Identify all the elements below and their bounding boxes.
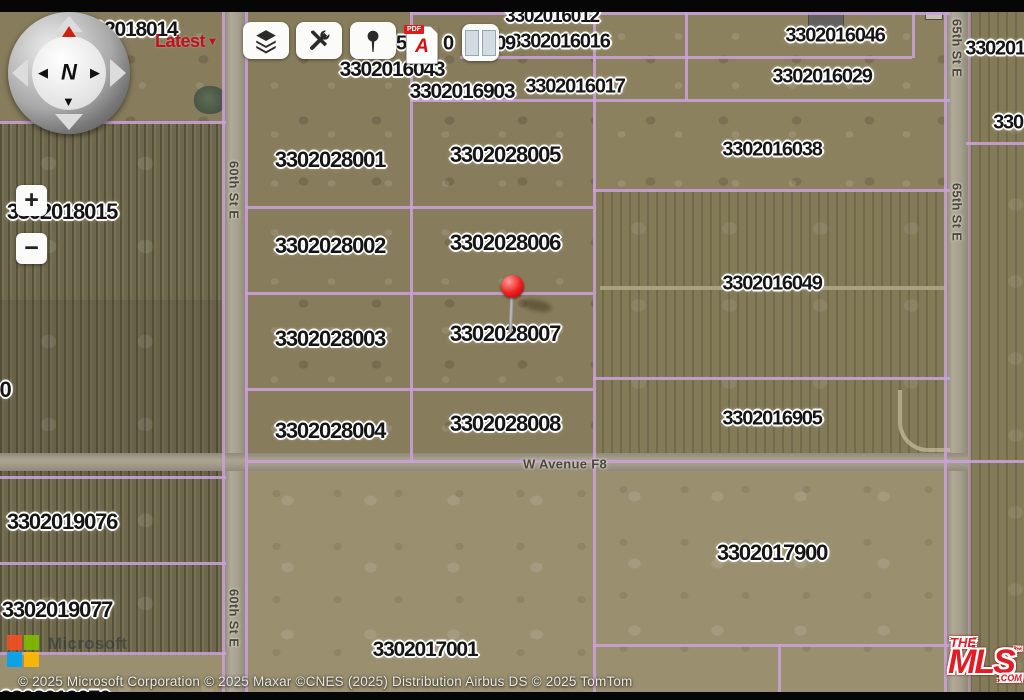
dirt-trail [898,390,950,452]
pushpin-icon [360,28,386,54]
split-view-button[interactable] [462,24,499,61]
parcel-boundary [966,142,1024,145]
pin-tool-button[interactable] [350,22,396,59]
parcel-boundary [778,644,781,692]
parcel-boundary [246,460,1024,463]
parcel-boundary [246,388,593,391]
ms-square-yellow [24,652,39,667]
layers-button[interactable] [243,22,289,59]
terrain-patch [593,463,950,692]
compass-north-needle [62,26,76,37]
compass-north-label: N [61,59,77,85]
tools-icon [306,28,332,54]
latest-dropdown[interactable]: Latest ▾ [155,31,215,52]
latest-label: Latest [155,31,205,51]
split-pane-icon [482,30,496,56]
ms-square-blue [7,652,22,667]
parcel-boundary [0,476,226,479]
parcel-boundary [968,12,971,692]
parcel-boundary [593,12,596,692]
mls-logo-tm: ™ [1014,646,1022,655]
parcel-boundary [912,12,915,58]
parcel-boundary [222,12,225,692]
ms-square-red [7,635,22,650]
rotate-east-arrow[interactable]: ▶ [90,66,100,79]
minus-icon: − [24,236,39,261]
layers-icon [253,28,279,54]
pdf-export-icon[interactable]: PDF A [406,26,438,64]
pdf-badge: PDF [404,25,424,34]
parcel-boundary [410,12,413,462]
terrain-patch [0,479,226,655]
zoom-out-button[interactable]: − [16,233,47,264]
road-65th-st [946,12,968,692]
ms-square-green [24,635,39,650]
parcel-boundary [410,99,950,102]
rotate-south-arrow[interactable]: ▼ [62,95,75,108]
parcel-boundary [944,12,947,692]
split-pane-icon [465,30,479,56]
map-canvas[interactable]: 3302018014330201601233020160163302016046… [0,0,1024,700]
parcel-boundary [246,206,593,209]
parcel-boundary [410,12,950,15]
parcel-boundary [245,12,248,692]
terrain-patch [246,12,593,467]
page-fold [430,26,438,34]
parcel-boundary [593,189,950,192]
acrobat-glyph: A [415,36,429,58]
rotate-west-arrow[interactable]: ◀ [38,66,48,79]
parcel-boundary [593,377,950,380]
map-attribution: © 2025 Microsoft Corporation © 2025 Maxa… [18,674,633,689]
chevron-down-icon: ▾ [210,34,216,48]
microsoft-logo [7,635,39,667]
dirt-trail [600,286,945,290]
parcel-boundary [246,292,593,295]
pan-east-arrow[interactable] [110,59,126,87]
pan-west-arrow[interactable] [12,59,28,87]
parcel-boundary [0,562,226,565]
microsoft-watermark: Microsoft [48,634,127,654]
terrain-patch [246,467,593,692]
tools-button[interactable] [296,22,342,59]
terrain-patch [593,190,950,463]
road-60th-st [224,12,246,692]
bottom-letterbox-bar [0,692,1024,700]
top-letterbox-bar [0,0,1024,12]
themls-logo[interactable]: THE MLS™ .COM [948,638,1022,682]
pan-south-arrow[interactable] [55,114,83,130]
parcel-boundary [593,644,950,647]
parcel-boundary [685,12,688,100]
plus-icon: + [24,188,39,213]
compass[interactable]: ◀ ▶ ▼ N [8,12,130,134]
zoom-in-button[interactable]: + [16,185,47,216]
map-pin[interactable] [501,275,524,298]
terrain-patch [970,12,1024,692]
